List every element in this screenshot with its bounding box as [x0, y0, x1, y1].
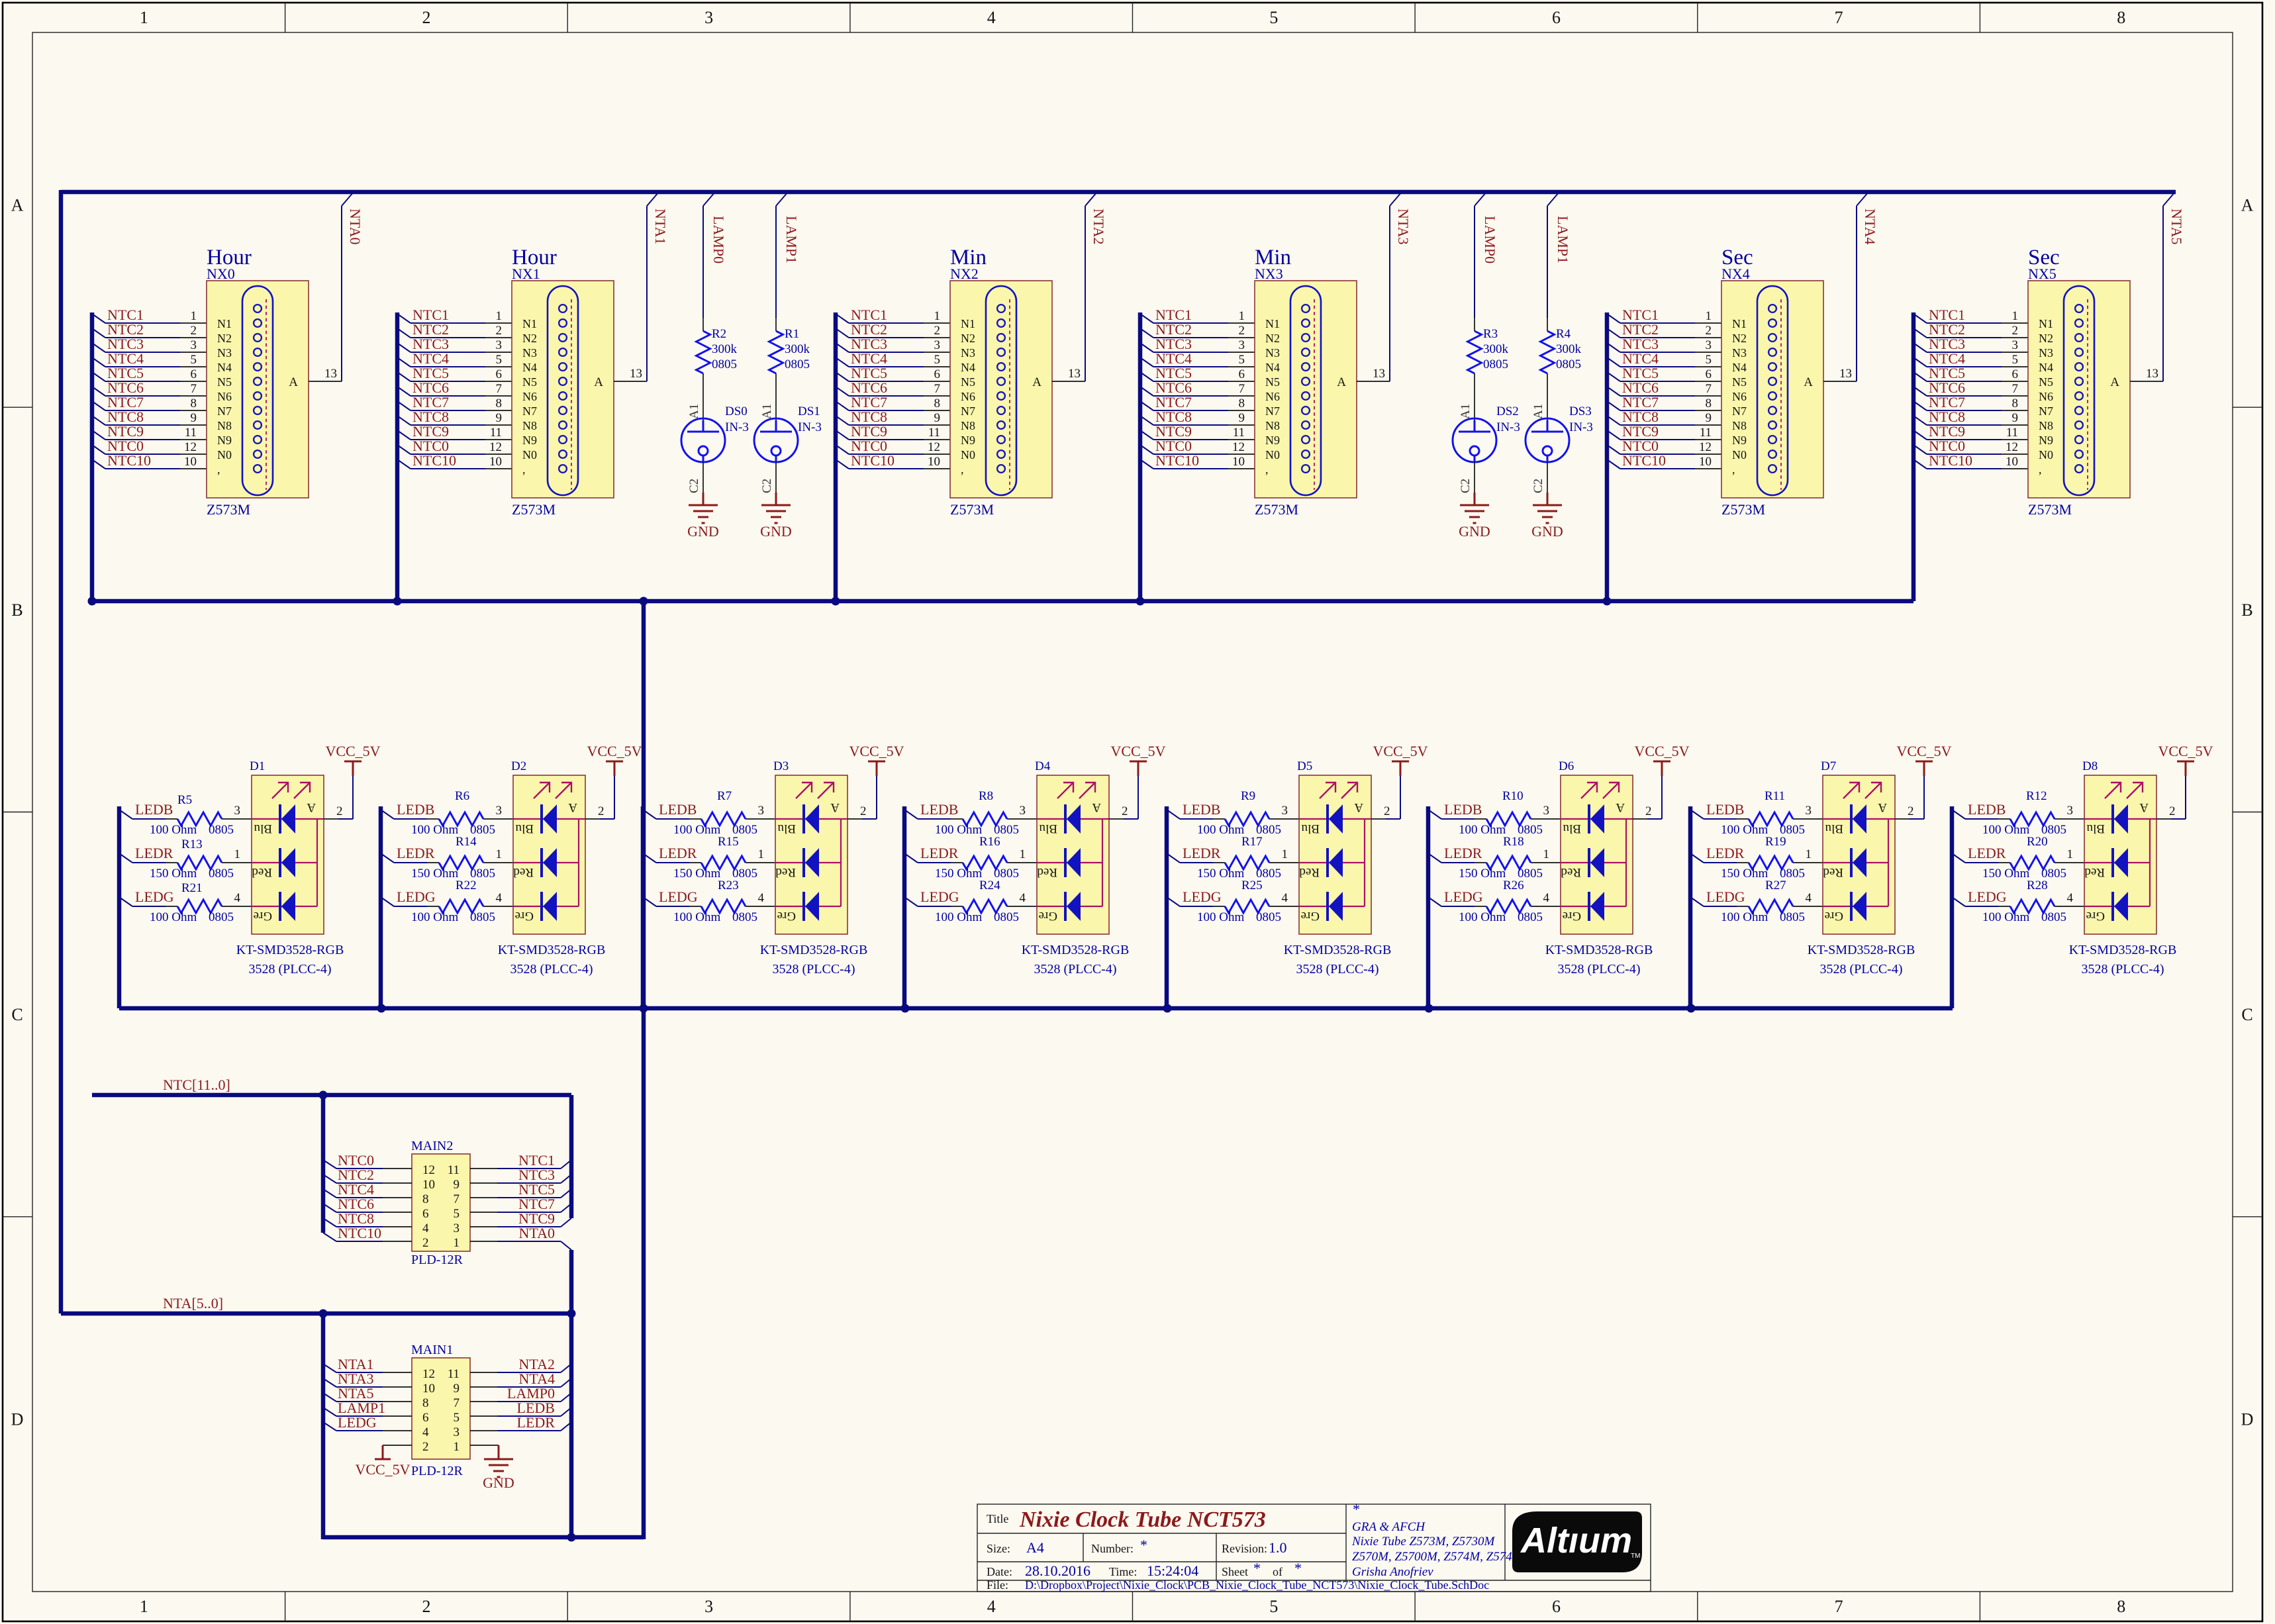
- svg-text:LEDG: LEDG: [1968, 888, 2007, 905]
- svg-text:6: 6: [1552, 8, 1561, 27]
- svg-text:N9: N9: [217, 434, 232, 447]
- svg-text:A1: A1: [760, 404, 774, 419]
- svg-text:Red: Red: [252, 865, 272, 879]
- svg-text:8: 8: [1239, 397, 1245, 410]
- svg-text:GND: GND: [1459, 523, 1490, 540]
- svg-text:Blu: Blu: [1301, 822, 1320, 836]
- svg-text:N6: N6: [961, 390, 975, 403]
- svg-text:C2: C2: [1459, 479, 1473, 493]
- svg-text:N9: N9: [961, 434, 975, 447]
- svg-text:N2: N2: [2039, 332, 2053, 345]
- svg-text:2: 2: [1706, 324, 1712, 338]
- svg-text:1: 1: [1282, 847, 1288, 861]
- svg-text:8: 8: [2117, 1597, 2125, 1616]
- svg-text:11: 11: [448, 1367, 460, 1381]
- svg-text:2: 2: [191, 324, 197, 338]
- svg-text:N3: N3: [961, 346, 975, 359]
- svg-text:N3: N3: [217, 346, 232, 359]
- svg-text:5: 5: [2012, 353, 2019, 367]
- svg-text:VCC_5V: VCC_5V: [1896, 743, 1951, 759]
- svg-text:6: 6: [496, 367, 503, 381]
- svg-text:R15: R15: [718, 835, 739, 849]
- svg-text:0805: 0805: [2041, 910, 2066, 924]
- svg-text:N5: N5: [522, 375, 537, 389]
- svg-text:LEDB: LEDB: [397, 801, 434, 818]
- svg-text:LEDB: LEDB: [1706, 801, 1744, 818]
- svg-text:VCC_5V: VCC_5V: [587, 743, 642, 759]
- svg-text:VCC_5V: VCC_5V: [1110, 743, 1165, 759]
- svg-text:Gre: Gre: [254, 909, 272, 923]
- svg-text:10: 10: [422, 1382, 435, 1396]
- svg-text:0805: 0805: [994, 910, 1019, 924]
- svg-text:PLD-12R: PLD-12R: [411, 1464, 463, 1478]
- svg-text:TM: TM: [1631, 1552, 1640, 1560]
- svg-text:100 Ohm: 100 Ohm: [1197, 910, 1244, 924]
- svg-text:8: 8: [496, 397, 503, 410]
- svg-text:Blu: Blu: [1039, 822, 1057, 836]
- svg-text:Blu: Blu: [777, 822, 796, 836]
- svg-text:NTA4: NTA4: [1862, 209, 1878, 244]
- svg-text:C: C: [2241, 1005, 2252, 1024]
- svg-text:of: of: [1273, 1565, 1283, 1578]
- svg-text:N8: N8: [2039, 419, 2053, 432]
- svg-text:3: 3: [234, 804, 241, 818]
- svg-text:7: 7: [2012, 382, 2019, 396]
- svg-text:150 Ohm: 150 Ohm: [935, 867, 982, 881]
- svg-text:8: 8: [934, 397, 941, 410]
- svg-text:100 Ohm: 100 Ohm: [411, 910, 458, 924]
- svg-text:2: 2: [496, 324, 503, 338]
- svg-text:3: 3: [1020, 804, 1026, 818]
- svg-text:0805: 0805: [1780, 910, 1805, 924]
- svg-text:LEDR: LEDR: [135, 845, 173, 861]
- svg-text:3528 (PLCC-4): 3528 (PLCC-4): [773, 962, 855, 977]
- svg-text:5: 5: [1239, 353, 1245, 367]
- svg-text:MAIN2: MAIN2: [411, 1139, 453, 1153]
- svg-text:15:24:04: 15:24:04: [1147, 1562, 1198, 1579]
- svg-text:4: 4: [1806, 891, 1812, 905]
- svg-text:N7: N7: [961, 405, 975, 418]
- svg-text:N0: N0: [961, 448, 975, 461]
- svg-text:Gre: Gre: [2086, 909, 2105, 923]
- svg-text:7: 7: [454, 1396, 460, 1410]
- svg-text:1: 1: [191, 309, 197, 323]
- svg-text:1: 1: [1239, 309, 1245, 323]
- svg-text:N4: N4: [217, 361, 232, 374]
- svg-text:100 Ohm: 100 Ohm: [150, 910, 197, 924]
- svg-text:N0: N0: [1265, 448, 1280, 461]
- svg-text:5: 5: [191, 353, 197, 367]
- svg-text:3528 (PLCC-4): 3528 (PLCC-4): [510, 962, 593, 977]
- svg-text:R27: R27: [1765, 879, 1786, 892]
- svg-text:Sheet: Sheet: [1222, 1565, 1248, 1578]
- svg-text:Grisha Anofriev: Grisha Anofriev: [1352, 1565, 1433, 1579]
- svg-text:*: *: [1294, 1560, 1302, 1576]
- svg-text:2: 2: [860, 804, 867, 818]
- svg-text:10: 10: [928, 455, 940, 469]
- svg-text:C2: C2: [760, 479, 774, 493]
- svg-text:Nixie Clock Tube NCT573: Nixie Clock Tube NCT573: [1019, 1507, 1266, 1532]
- svg-text:N6: N6: [1265, 390, 1280, 403]
- svg-text:9: 9: [1239, 411, 1245, 425]
- svg-text:R23: R23: [718, 879, 739, 892]
- svg-text:LEDG: LEDG: [397, 888, 436, 905]
- svg-text:D7: D7: [1821, 759, 1836, 773]
- svg-text:2: 2: [1384, 804, 1390, 818]
- svg-text:2: 2: [2012, 324, 2019, 338]
- svg-text:*: *: [1140, 1537, 1147, 1553]
- svg-text:Date:: Date:: [987, 1565, 1012, 1578]
- svg-text:9: 9: [934, 411, 941, 425]
- svg-text:LEDR: LEDR: [920, 845, 959, 861]
- svg-text:Title: Title: [987, 1512, 1008, 1525]
- svg-text:N3: N3: [522, 346, 537, 359]
- svg-text:12: 12: [1699, 440, 1712, 454]
- svg-text:N2: N2: [1732, 332, 1747, 345]
- svg-text:13: 13: [1373, 367, 1385, 381]
- svg-text:Gre: Gre: [1563, 909, 1581, 923]
- svg-text:N8: N8: [522, 419, 537, 432]
- svg-text:N7: N7: [1732, 405, 1747, 418]
- svg-text:7: 7: [934, 382, 941, 396]
- svg-text:1: 1: [934, 309, 941, 323]
- svg-text:10: 10: [1699, 455, 1712, 469]
- svg-text:Z570M, Z5700M, Z574M, Z5740M: Z570M, Z5700M, Z574M, Z5740M: [1352, 1550, 1529, 1564]
- svg-text:100 Ohm: 100 Ohm: [150, 823, 197, 837]
- svg-text:100 Ohm: 100 Ohm: [1197, 823, 1244, 837]
- svg-text:N2: N2: [522, 332, 537, 345]
- svg-text:MAIN1: MAIN1: [411, 1343, 453, 1357]
- svg-text:N1: N1: [1265, 317, 1280, 330]
- svg-text:Z573M: Z573M: [2028, 501, 2072, 518]
- svg-text:C2: C2: [1531, 479, 1545, 493]
- svg-text:D3: D3: [773, 759, 789, 773]
- svg-text:File:: File:: [987, 1578, 1008, 1592]
- svg-text:Z573M: Z573M: [512, 501, 556, 518]
- svg-text:LEDG: LEDG: [1444, 888, 1483, 905]
- svg-text:,: ,: [1265, 463, 1269, 476]
- svg-text:R18: R18: [1503, 835, 1524, 849]
- svg-text:VCC_5V: VCC_5V: [355, 1461, 410, 1478]
- svg-text:,: ,: [217, 463, 220, 476]
- svg-text:7: 7: [191, 382, 197, 396]
- svg-text:KT-SMD3528-RGB: KT-SMD3528-RGB: [2069, 943, 2177, 957]
- svg-text:R4: R4: [1556, 327, 1571, 341]
- svg-text:7: 7: [496, 382, 503, 396]
- svg-text:A1: A1: [687, 404, 701, 419]
- svg-text:A: A: [1032, 375, 1041, 389]
- svg-text:4: 4: [234, 891, 241, 905]
- svg-text:C2: C2: [687, 479, 701, 493]
- svg-text:R14: R14: [456, 835, 477, 849]
- svg-text:N6: N6: [522, 390, 537, 403]
- svg-text:150 Ohm: 150 Ohm: [1982, 867, 2029, 881]
- svg-text:N4: N4: [522, 361, 537, 374]
- svg-text:12: 12: [1232, 440, 1245, 454]
- svg-text:11: 11: [928, 426, 940, 440]
- svg-text:13: 13: [1068, 367, 1081, 381]
- svg-text:LEDG: LEDG: [1706, 888, 1745, 905]
- svg-text:*: *: [1353, 1501, 1360, 1517]
- svg-text:LEDB: LEDB: [135, 801, 173, 818]
- svg-text:NTA0: NTA0: [519, 1225, 555, 1241]
- svg-text:N1: N1: [217, 317, 232, 330]
- svg-text:3: 3: [758, 804, 765, 818]
- svg-text:N0: N0: [2039, 448, 2053, 461]
- svg-text:KT-SMD3528-RGB: KT-SMD3528-RGB: [236, 943, 344, 957]
- svg-text:R26: R26: [1503, 879, 1524, 892]
- svg-text:D:\Dropbox\Project\Nixie_Clock: D:\Dropbox\Project\Nixie_Clock\PCB_Nixie…: [1025, 1578, 1489, 1592]
- svg-text:11: 11: [185, 426, 197, 440]
- svg-text:2: 2: [422, 1236, 429, 1250]
- svg-text:LEDR: LEDR: [1706, 845, 1745, 861]
- svg-text:R20: R20: [2027, 835, 2048, 849]
- svg-text:3528 (PLCC-4): 3528 (PLCC-4): [249, 962, 332, 977]
- svg-text:1: 1: [234, 847, 241, 861]
- svg-text:1.0: 1.0: [1269, 1539, 1287, 1556]
- svg-text:N5: N5: [217, 375, 232, 389]
- svg-text:NTA1: NTA1: [652, 209, 669, 244]
- svg-text:N6: N6: [217, 390, 232, 403]
- svg-text:6: 6: [422, 1411, 429, 1425]
- svg-text:2: 2: [1239, 324, 1245, 338]
- svg-text:Nixie Tube Z573M, Z5730M: Nixie Tube Z573M, Z5730M: [1351, 1535, 1496, 1549]
- svg-text:R1: R1: [785, 327, 799, 341]
- svg-text:1: 1: [2012, 309, 2019, 323]
- svg-text:NTA3: NTA3: [1395, 209, 1412, 244]
- svg-text:N7: N7: [522, 405, 537, 418]
- svg-text:3528 (PLCC-4): 3528 (PLCC-4): [2082, 962, 2164, 977]
- svg-text:C: C: [11, 1005, 23, 1024]
- svg-text:LEDG: LEDG: [135, 888, 174, 905]
- svg-text:A: A: [11, 196, 24, 215]
- svg-text:A: A: [1616, 800, 1625, 814]
- svg-text:4: 4: [496, 891, 503, 905]
- svg-text:1: 1: [1543, 847, 1550, 861]
- svg-text:Red: Red: [513, 865, 534, 879]
- svg-text:LEDG: LEDG: [920, 888, 959, 905]
- svg-text:7: 7: [1835, 8, 1843, 27]
- svg-text:2: 2: [422, 8, 430, 27]
- svg-text:N7: N7: [2039, 405, 2053, 418]
- svg-text:LEDG: LEDG: [338, 1414, 377, 1431]
- svg-text:N7: N7: [1265, 405, 1280, 418]
- svg-text:NTC10: NTC10: [412, 452, 456, 469]
- svg-text:GND: GND: [1531, 523, 1563, 540]
- svg-text:A1: A1: [1459, 404, 1473, 419]
- svg-text:R21: R21: [181, 881, 203, 895]
- svg-text:R10: R10: [1502, 789, 1524, 803]
- svg-text:LEDB: LEDB: [1183, 801, 1220, 818]
- svg-text:,: ,: [522, 463, 526, 476]
- svg-text:9: 9: [496, 411, 503, 425]
- svg-text:N0: N0: [522, 448, 537, 461]
- svg-text:Gre: Gre: [777, 909, 796, 923]
- svg-text:2: 2: [598, 804, 605, 818]
- svg-text:LEDR: LEDR: [397, 845, 435, 861]
- svg-text:Red: Red: [1037, 865, 1057, 879]
- svg-text:D: D: [2241, 1409, 2254, 1429]
- svg-text:NTC[11..0]: NTC[11..0]: [163, 1076, 230, 1093]
- svg-text:Gre: Gre: [515, 909, 534, 923]
- svg-text:LEDR: LEDR: [517, 1414, 556, 1431]
- svg-text:N6: N6: [2039, 390, 2053, 403]
- svg-text:VCC_5V: VCC_5V: [1373, 743, 1428, 759]
- svg-text:IN-3: IN-3: [1496, 420, 1520, 434]
- svg-text:2: 2: [422, 1597, 430, 1616]
- svg-text:Blu: Blu: [1825, 822, 1843, 836]
- svg-text:N5: N5: [961, 375, 975, 389]
- svg-text:1: 1: [1706, 309, 1712, 323]
- svg-text:13: 13: [2146, 367, 2158, 381]
- svg-text:0805: 0805: [1518, 910, 1543, 924]
- svg-text:Red: Red: [2084, 865, 2105, 879]
- svg-text:0805: 0805: [732, 910, 757, 924]
- svg-text:6: 6: [1239, 367, 1245, 381]
- svg-text:11: 11: [490, 426, 502, 440]
- svg-text:D5: D5: [1297, 759, 1312, 773]
- svg-text:8: 8: [422, 1192, 429, 1206]
- svg-text:150 Ohm: 150 Ohm: [1197, 867, 1244, 881]
- svg-text:2: 2: [422, 1440, 429, 1454]
- svg-text:NX3: NX3: [1255, 265, 1283, 282]
- svg-text:3: 3: [454, 1425, 460, 1439]
- svg-text:D4: D4: [1035, 759, 1051, 773]
- svg-text:0805: 0805: [470, 910, 495, 924]
- svg-text:10: 10: [489, 455, 502, 469]
- svg-text:Revision:: Revision:: [1222, 1542, 1267, 1555]
- svg-text:6: 6: [1706, 367, 1712, 381]
- svg-text:R5: R5: [177, 793, 192, 807]
- svg-text:NX5: NX5: [2028, 265, 2057, 282]
- svg-text:LAMP1: LAMP1: [783, 216, 800, 263]
- svg-text:0805: 0805: [209, 823, 234, 837]
- svg-text:300k: 300k: [712, 342, 738, 356]
- svg-text:LEDB: LEDB: [659, 801, 697, 818]
- svg-text:GND: GND: [483, 1474, 514, 1491]
- svg-text:Blu: Blu: [254, 822, 272, 836]
- svg-text:D2: D2: [511, 759, 526, 773]
- svg-text:DS0: DS0: [725, 405, 748, 418]
- svg-text:5: 5: [454, 1411, 460, 1425]
- svg-text:NTA0: NTA0: [347, 209, 363, 244]
- svg-text:N8: N8: [217, 419, 232, 432]
- svg-text:100 Ohm: 100 Ohm: [1721, 910, 1768, 924]
- svg-text:10: 10: [1232, 455, 1245, 469]
- svg-text:4: 4: [1543, 891, 1550, 905]
- svg-text:3: 3: [1806, 804, 1812, 818]
- svg-text:12: 12: [184, 440, 197, 454]
- svg-text:LEDR: LEDR: [1444, 845, 1482, 861]
- svg-text:100 Ohm: 100 Ohm: [1982, 823, 2029, 837]
- svg-text:N1: N1: [2039, 317, 2053, 330]
- svg-text:GND: GND: [760, 523, 792, 540]
- svg-text:100 Ohm: 100 Ohm: [935, 910, 982, 924]
- svg-text:D6: D6: [1559, 759, 1574, 773]
- svg-text:N5: N5: [1732, 375, 1747, 389]
- svg-text:1: 1: [1806, 847, 1812, 861]
- svg-text:100 Ohm: 100 Ohm: [1459, 823, 1506, 837]
- svg-text:IN-3: IN-3: [798, 420, 822, 434]
- svg-text:R13: R13: [181, 837, 203, 851]
- svg-text:1: 1: [454, 1440, 460, 1454]
- svg-text:Z573M: Z573M: [950, 501, 994, 518]
- svg-text:N8: N8: [1732, 419, 1747, 432]
- svg-text:N0: N0: [1732, 448, 1747, 461]
- svg-text:N2: N2: [1265, 332, 1280, 345]
- svg-text:R24: R24: [979, 879, 1000, 892]
- svg-text:Size:: Size:: [987, 1542, 1010, 1555]
- svg-text:A: A: [1092, 800, 1101, 814]
- svg-text:28.10.2016: 28.10.2016: [1025, 1562, 1090, 1579]
- svg-text:LEDG: LEDG: [659, 888, 698, 905]
- svg-text:N9: N9: [1732, 434, 1747, 447]
- svg-text:8: 8: [2117, 8, 2125, 27]
- svg-text:12: 12: [2006, 440, 2018, 454]
- svg-text:100 Ohm: 100 Ohm: [411, 823, 458, 837]
- svg-text:N1: N1: [1732, 317, 1747, 330]
- svg-text:150 Ohm: 150 Ohm: [150, 867, 197, 881]
- svg-text:R19: R19: [1765, 835, 1786, 849]
- svg-text:N4: N4: [961, 361, 975, 374]
- svg-text:0805: 0805: [785, 358, 810, 371]
- svg-text:5: 5: [934, 353, 941, 367]
- svg-text:R17: R17: [1241, 835, 1263, 849]
- svg-text:7: 7: [1706, 382, 1712, 396]
- svg-text:NTC10: NTC10: [338, 1225, 381, 1241]
- svg-text:A4: A4: [1026, 1539, 1044, 1556]
- svg-text:R16: R16: [979, 835, 1000, 849]
- svg-text:10: 10: [422, 1178, 435, 1192]
- svg-text:N1: N1: [961, 317, 975, 330]
- svg-text:12: 12: [928, 440, 940, 454]
- svg-text:1: 1: [1020, 847, 1026, 861]
- svg-text:NTC10: NTC10: [1929, 452, 1972, 469]
- svg-text:Red: Red: [1823, 865, 1843, 879]
- svg-text:R22: R22: [456, 879, 477, 892]
- svg-text:R6: R6: [455, 789, 469, 803]
- svg-text:1: 1: [496, 847, 503, 861]
- svg-text:N4: N4: [2039, 361, 2053, 374]
- svg-text:A: A: [830, 800, 840, 814]
- svg-text:4: 4: [758, 891, 765, 905]
- svg-text:0805: 0805: [209, 910, 234, 924]
- svg-text:N7: N7: [217, 405, 232, 418]
- svg-text:NTA2: NTA2: [1090, 209, 1107, 244]
- svg-text:5: 5: [1269, 1597, 1278, 1616]
- svg-text:Gre: Gre: [1301, 909, 1320, 923]
- svg-text:LEDB: LEDB: [920, 801, 958, 818]
- svg-text:1: 1: [496, 309, 503, 323]
- svg-text:NX1: NX1: [512, 265, 540, 282]
- svg-text:4: 4: [422, 1425, 429, 1439]
- svg-text:4: 4: [422, 1221, 429, 1235]
- svg-text:3: 3: [2067, 804, 2074, 818]
- svg-text:13: 13: [1839, 367, 1852, 381]
- svg-text:A: A: [289, 375, 298, 389]
- svg-text:NX0: NX0: [207, 265, 235, 282]
- svg-text:NTC10: NTC10: [851, 452, 895, 469]
- svg-text:9: 9: [1706, 411, 1712, 425]
- svg-text:KT-SMD3528-RGB: KT-SMD3528-RGB: [760, 943, 868, 957]
- svg-text:VCC_5V: VCC_5V: [1634, 743, 1689, 759]
- svg-text:3: 3: [454, 1221, 460, 1235]
- svg-text:Z573M: Z573M: [1255, 501, 1298, 518]
- svg-text:LAMP0: LAMP0: [710, 216, 727, 263]
- svg-text:N6: N6: [1732, 390, 1747, 403]
- svg-text:DS3: DS3: [1569, 405, 1592, 418]
- svg-text:N8: N8: [1265, 419, 1280, 432]
